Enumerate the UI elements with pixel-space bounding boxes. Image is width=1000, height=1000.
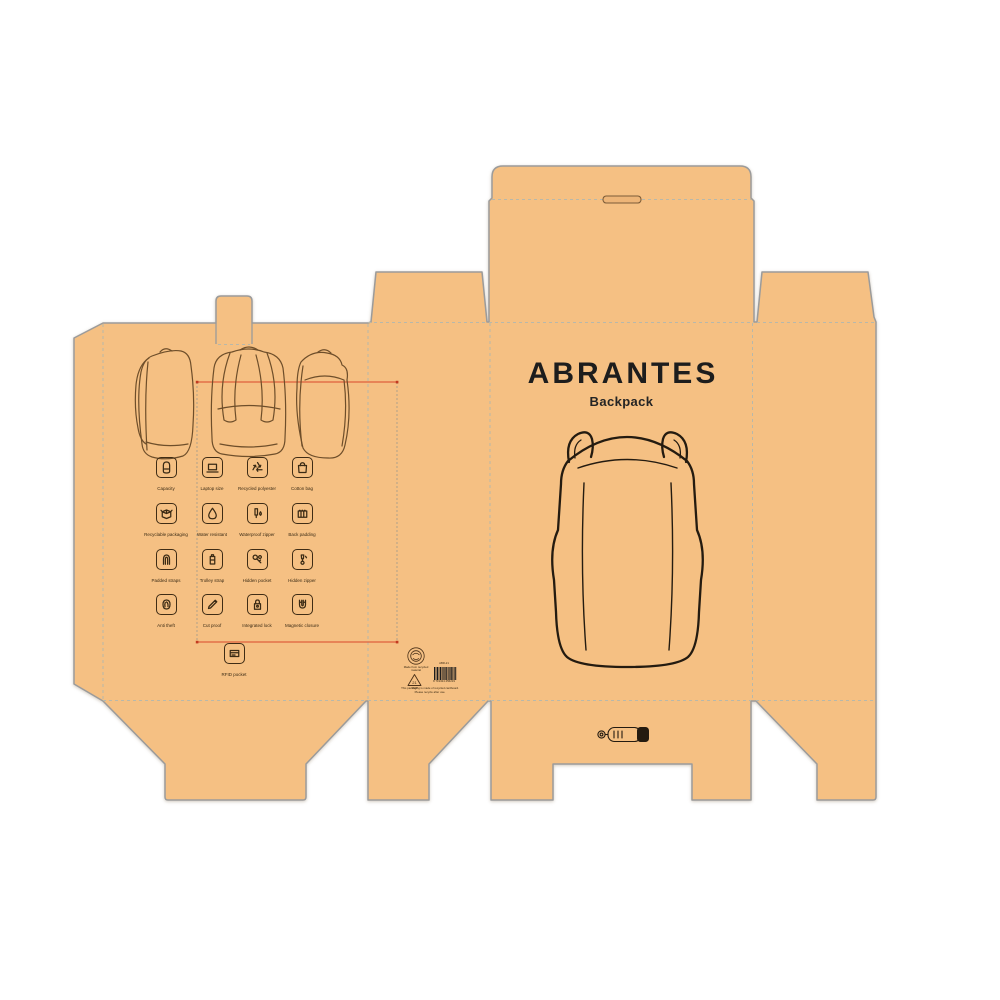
svg-text:21: 21 <box>412 680 417 685</box>
backpack-icon <box>156 457 177 478</box>
droplet-icon <box>202 503 223 524</box>
trolley-icon <box>202 549 223 570</box>
barcode-digits: 8 719324 456219 <box>430 680 458 683</box>
fingerprint-icon <box>156 594 177 615</box>
feature-label: RFID pocket <box>202 672 266 677</box>
barcode-labels: ABR-21 8 719324 456219 <box>430 662 458 684</box>
feature-magnetic-closure: Magnetic closure <box>270 594 334 628</box>
padding-icon <box>292 503 313 524</box>
blade-icon <box>202 594 223 615</box>
strap-icon <box>156 549 177 570</box>
barcode-spacer <box>430 665 458 680</box>
feature-hidden-zipper: Hidden zipper <box>270 549 334 583</box>
lid-slot-cut <box>603 196 641 203</box>
laptop-icon <box>202 457 223 478</box>
box-icon <box>156 503 177 524</box>
recycle-icon <box>247 457 268 478</box>
feature-label: Back padding <box>270 532 334 537</box>
zipper-icon <box>292 549 313 570</box>
tote-bag-icon <box>292 457 313 478</box>
padlock-icon <box>247 594 268 615</box>
magnet-icon <box>292 594 313 615</box>
zipper-drop-icon <box>247 503 268 524</box>
brand-subtitle: Backpack <box>489 394 754 409</box>
keys-icon <box>247 549 268 570</box>
feature-label: Magnetic closure <box>270 623 334 628</box>
packaging-dieline-mockup: 21 ABRANTES Backpack Capacity Laptop siz… <box>0 0 1000 1000</box>
card-icon <box>224 643 245 664</box>
fine-print: This packaging is made of recycled cardb… <box>398 687 462 694</box>
feature-cotton-bag: Cotton bag <box>270 457 334 491</box>
brand-title: ABRANTES <box>489 357 754 391</box>
fine-print-line: Please recycle after use. <box>398 691 462 695</box>
feature-label: Hidden zipper <box>270 578 334 583</box>
feature-rfid-pocket: RFID pocket <box>202 643 266 677</box>
feature-back-padding: Back padding <box>270 503 334 537</box>
dieline-drawing: 21 <box>0 0 1000 1000</box>
feature-label: Cotton bag <box>270 486 334 491</box>
